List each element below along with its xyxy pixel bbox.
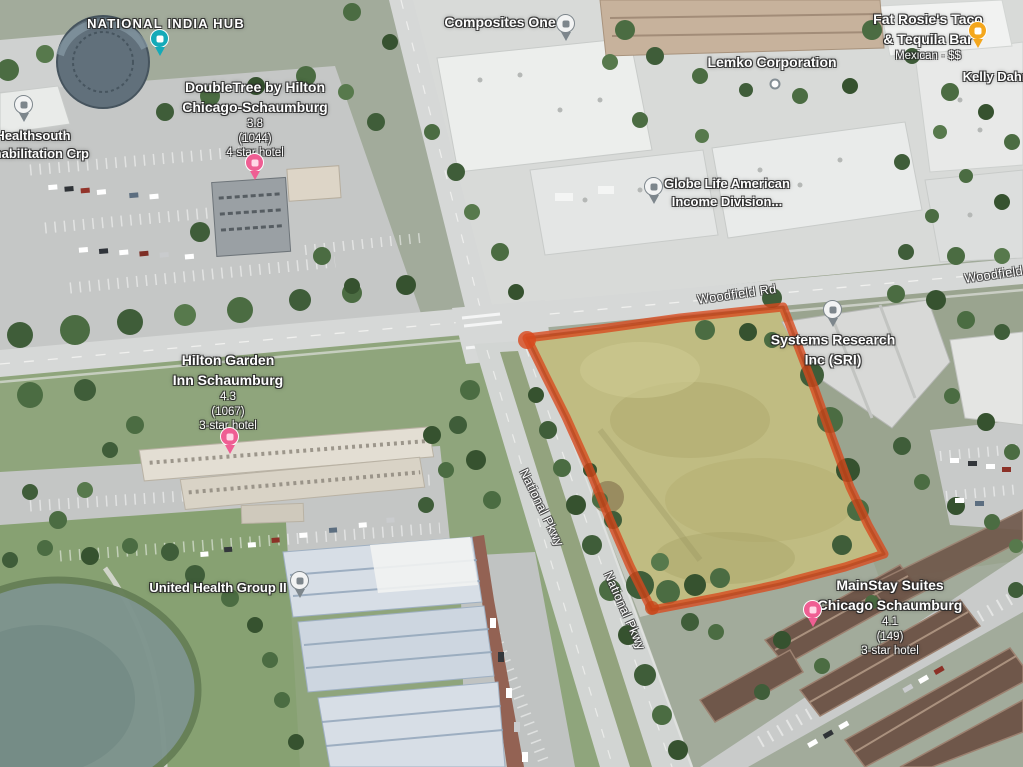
poi-name-line: Healthsouth <box>0 127 89 145</box>
poi-rating: 3.8 <box>182 117 327 131</box>
poi-label-kelly-dahm[interactable]: Kelly Dahm <box>963 68 1023 86</box>
poi-name-line: Rehabilitation Crp <box>0 145 89 163</box>
poi-name-line: Systems Research <box>771 330 896 350</box>
poi-pin-healthsouth[interactable] <box>14 95 34 123</box>
poi-review-count: (149) <box>818 629 963 643</box>
bed-icon <box>803 600 822 619</box>
poi-name-line: Inc (SRI) <box>771 350 896 370</box>
hotel-pin-mainstay[interactable] <box>803 600 823 628</box>
pin-tail <box>295 589 305 598</box>
poi-label-mainstay[interactable]: MainStay Suites Chicago Schaumburg 4.1 (… <box>818 576 963 658</box>
poi-name-line: Income Division... <box>664 193 790 211</box>
poi-label-systems-research[interactable]: Systems Research Inc (SRI) <box>771 330 896 369</box>
poi-review-count: (1067) <box>173 404 283 418</box>
poi-pin-globe-life[interactable] <box>644 177 664 205</box>
pin-head-icon <box>968 21 987 40</box>
poi-review-count: (1044) <box>182 131 327 145</box>
pin-tail <box>828 318 838 327</box>
poi-rating: 4.3 <box>173 390 283 404</box>
bed-icon <box>245 153 264 172</box>
pin-tail <box>649 195 659 204</box>
building-pin-national-india-hub[interactable] <box>150 29 170 57</box>
pin-tail <box>250 171 260 180</box>
hotel-pin-doubletree[interactable] <box>245 153 265 181</box>
pin-tail <box>973 39 983 48</box>
poi-dot-lemko[interactable] <box>770 79 781 90</box>
pin-tail <box>225 445 235 454</box>
poi-label-fat-rosies[interactable]: Fat Rosie's Taco & Tequila Bar Mexican ·… <box>873 10 983 64</box>
pin-head-icon <box>150 29 169 48</box>
poi-category: 3-star hotel <box>818 644 963 658</box>
poi-label-doubletree[interactable]: DoubleTree by Hilton Chicago-Schaumburg … <box>182 78 327 160</box>
pin-head-icon <box>290 571 309 590</box>
poi-name-line: Globe Life American <box>664 175 790 193</box>
poi-label-globe-life[interactable]: Globe Life American Income Division... <box>664 175 790 211</box>
poi-label-lemko[interactable]: Lemko Corporation <box>707 53 836 73</box>
poi-name-line: Hilton Garden <box>173 351 283 371</box>
pin-head-icon <box>644 177 663 196</box>
poi-label-composites-one[interactable]: Composites One <box>444 13 555 33</box>
pin-tail <box>155 47 165 56</box>
poi-name-line: Chicago Schaumburg <box>818 595 963 615</box>
poi-name-line: & Tequila Bar <box>873 30 983 50</box>
poi-name-line: Fat Rosie's Taco <box>873 10 983 30</box>
aerial-map-screenshot: { "map": { "view": "satellite-3d", "high… <box>0 0 1023 767</box>
pin-tail <box>19 113 29 122</box>
pin-head-icon <box>14 95 33 114</box>
pin-head-icon <box>556 14 575 33</box>
pin-tail <box>561 32 571 41</box>
poi-label-united-health[interactable]: United Health Group II <box>149 579 286 597</box>
poi-category: Mexican · $$ <box>873 49 983 63</box>
poi-pin-composites-one[interactable] <box>556 14 576 42</box>
poi-rating: 4.1 <box>818 615 963 629</box>
institution-icon <box>823 300 842 319</box>
restaurant-pin-fat-rosies[interactable] <box>968 21 988 49</box>
poi-label-hilton-garden[interactable]: Hilton Garden Inn Schaumburg 4.3 (1067) … <box>173 351 283 433</box>
poi-name-line: Chicago-Schaumburg <box>182 97 327 117</box>
hotel-pin-hilton-garden[interactable] <box>220 427 240 455</box>
bed-icon <box>220 427 239 446</box>
poi-name-line: DoubleTree by Hilton <box>182 78 327 98</box>
poi-name-line: Inn Schaumburg <box>173 370 283 390</box>
poi-pin-united-health[interactable] <box>290 571 310 599</box>
building-pin-systems-research[interactable] <box>823 300 843 328</box>
poi-label-healthsouth[interactable]: Healthsouth Rehabilitation Crp <box>0 127 89 163</box>
pin-tail <box>808 618 818 627</box>
poi-name-line: MainStay Suites <box>818 576 963 596</box>
